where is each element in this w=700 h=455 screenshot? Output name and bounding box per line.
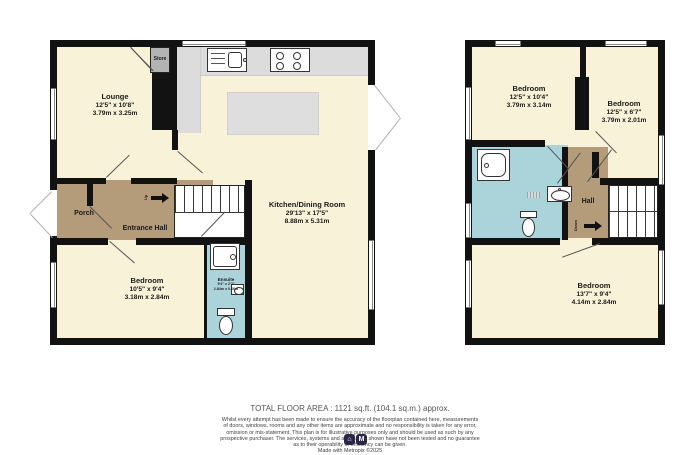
room-imperial: 10'5" x 9'4" — [125, 286, 170, 294]
stairs-up-label: Up — [143, 195, 148, 200]
room-metric: 3.79m x 2.01m — [602, 116, 647, 124]
porch-label: Porch — [74, 210, 94, 218]
down-arrow-head — [595, 221, 602, 231]
wall — [245, 180, 252, 338]
wall — [170, 47, 177, 73]
footer: TOTAL FLOOR AREA : 1121 sq.ft. (104.1 sq… — [0, 404, 700, 455]
room-name: Store — [154, 57, 167, 63]
room-name: Entrance Hall — [123, 225, 168, 233]
window — [659, 250, 664, 305]
room-metric: 3.79m x 3.25m — [93, 109, 138, 117]
staircase-first — [608, 185, 658, 238]
window — [466, 87, 471, 140]
wall — [50, 338, 375, 345]
hob — [270, 48, 310, 72]
kitchen-sink — [207, 48, 247, 72]
window — [466, 260, 471, 308]
bathroom-basin — [547, 186, 572, 202]
bath — [477, 149, 510, 181]
logo-house-icon: ⌂ — [344, 434, 355, 445]
room-imperial: 12'5" x 10'8" — [93, 102, 138, 110]
first-bedroom-left-label: Bedroom 12'5" x 10'4" 3.79m x 3.14m — [507, 85, 552, 109]
wall — [57, 178, 106, 184]
kitchen-counter-left — [177, 47, 201, 133]
ground-bedroom-label: Bedroom 10'5" x 9'4" 3.18m x 2.84m — [125, 277, 170, 301]
up-arrow-head — [162, 193, 169, 203]
room-metric: 3.18m x 2.84m — [125, 293, 170, 301]
window — [51, 88, 56, 140]
window — [369, 240, 374, 310]
patio-exterior-door-line — [374, 85, 400, 118]
wall — [131, 178, 177, 184]
ensuite-label: Ensuite 9'4" x 2'2" 2.84m x 0.66m — [214, 277, 238, 291]
wall — [600, 178, 658, 185]
stairs-down-label: Down — [573, 220, 578, 231]
first-bedroom-right-label: Bedroom 12'5" x 6'7" 3.79m x 2.01m — [602, 100, 647, 124]
metropix-logo: ⌂ M — [344, 434, 367, 445]
room-imperial: 13'7" x 9'4" — [572, 291, 617, 299]
room-name: Porch — [74, 210, 94, 218]
porch-door-opening — [50, 190, 57, 236]
room-name: Lounge — [93, 93, 138, 102]
shower-tray — [210, 243, 240, 270]
wall — [575, 77, 589, 130]
wall — [472, 140, 545, 147]
window — [659, 135, 664, 185]
total-floor-area: TOTAL FLOOR AREA : 1121 sq.ft. (104.1 sq… — [0, 404, 700, 413]
floorplan-canvas: Up Lounge 12'5" x 10'8" 3.79m x 3.25m St… — [0, 0, 700, 455]
shower-drain-icon — [230, 254, 236, 260]
logo-letter-icon: M — [356, 434, 367, 445]
wall — [50, 238, 108, 245]
chimney-block — [152, 73, 177, 130]
stair-treads — [175, 186, 244, 213]
toilet-tank — [520, 211, 537, 218]
wall — [204, 240, 207, 338]
room-name: Bedroom — [602, 100, 647, 109]
room-metric: 2.84m x 0.66m — [214, 287, 238, 291]
bath-tap-icon — [484, 163, 489, 168]
room-name: Bedroom — [125, 277, 170, 286]
room-name: Bedroom — [572, 282, 617, 291]
radiator-icon — [527, 192, 540, 198]
hall-label: Hall — [582, 198, 595, 206]
patio-exterior-door-line — [375, 118, 401, 151]
wall — [172, 130, 178, 150]
first-bedroom-back-label: Bedroom 13'7" x 9'4" 4.14m x 2.84m — [572, 282, 617, 306]
down-arrow-icon — [584, 224, 595, 228]
room-metric: 4.14m x 2.84m — [572, 298, 617, 306]
wall — [472, 238, 560, 245]
room-metric: 8.88m x 5.31m — [269, 217, 345, 225]
staircase-ground — [174, 185, 245, 238]
up-arrow-icon — [151, 196, 162, 200]
credit-line: Made with Metropix ©2025 — [0, 448, 700, 454]
lounge-label: Lounge 12'5" x 10'8" 3.79m x 3.25m — [93, 93, 138, 117]
porch-exterior-door-line — [29, 191, 52, 214]
kitchen-dining-label: Kitchen/Dining Room 29'13" x 17'5" 8.88m… — [269, 201, 345, 225]
entrance-hall-label: Entrance Hall — [123, 225, 168, 233]
room-name: Kitchen/Dining Room — [269, 201, 345, 210]
wall — [592, 238, 658, 245]
toilet-tank — [217, 308, 235, 316]
tap-icon — [243, 58, 247, 62]
room-imperial: 12'5" x 6'7" — [602, 109, 647, 117]
wall — [580, 47, 586, 77]
patio-door-opening — [368, 85, 375, 150]
toilet-bowl — [219, 316, 233, 335]
room-metric: 3.79m x 3.14m — [507, 101, 552, 109]
window — [605, 41, 647, 46]
window — [466, 203, 471, 238]
kitchen-island — [227, 92, 319, 135]
window — [51, 262, 56, 308]
room-imperial: 12'5" x 10'4" — [507, 94, 552, 102]
window — [495, 41, 521, 46]
basin-tap-icon — [558, 188, 561, 191]
wall — [87, 180, 93, 206]
store-label: Store — [154, 57, 167, 63]
toilet-bowl — [522, 218, 535, 237]
stair-landing-line — [201, 212, 225, 237]
room-name: Hall — [582, 198, 595, 206]
wall — [465, 338, 665, 345]
room-name: Bedroom — [507, 85, 552, 94]
room-imperial: 29'13" x 17'5" — [269, 210, 345, 218]
window — [182, 41, 246, 46]
